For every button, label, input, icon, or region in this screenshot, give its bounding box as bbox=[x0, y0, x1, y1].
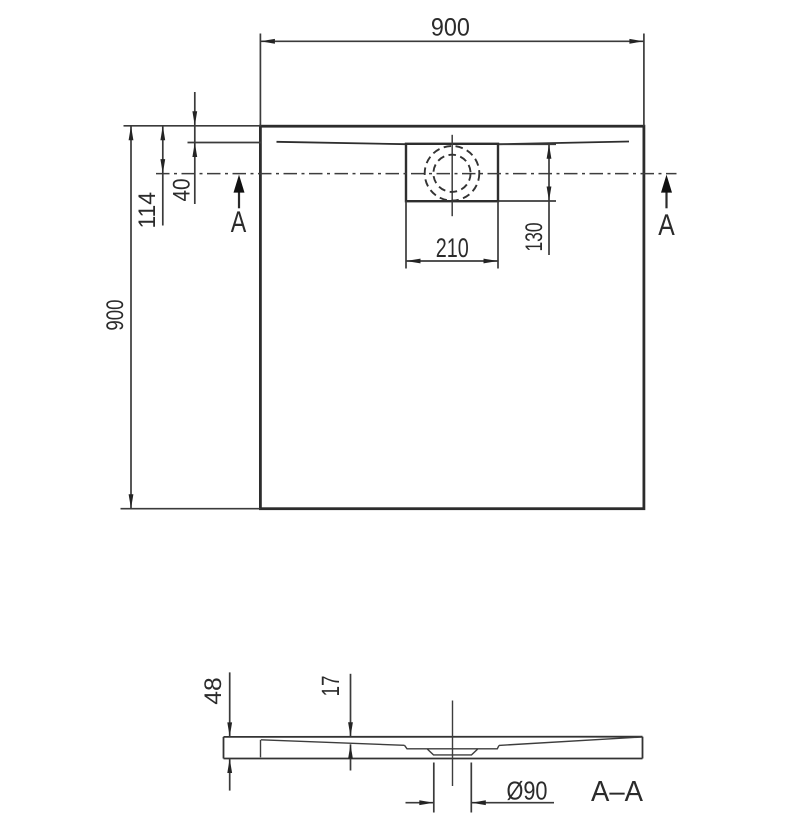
svg-text:40: 40 bbox=[168, 179, 195, 202]
svg-text:Ø90: Ø90 bbox=[507, 776, 548, 806]
svg-text:900: 900 bbox=[431, 14, 470, 42]
svg-text:A: A bbox=[658, 209, 675, 242]
svg-text:210: 210 bbox=[436, 233, 469, 263]
svg-text:114: 114 bbox=[134, 192, 161, 229]
svg-text:130: 130 bbox=[521, 223, 548, 252]
svg-text:A–A: A–A bbox=[591, 776, 644, 808]
svg-text:17: 17 bbox=[317, 676, 345, 697]
svg-text:900: 900 bbox=[102, 300, 129, 331]
svg-text:48: 48 bbox=[200, 677, 227, 705]
svg-text:A: A bbox=[231, 206, 247, 239]
